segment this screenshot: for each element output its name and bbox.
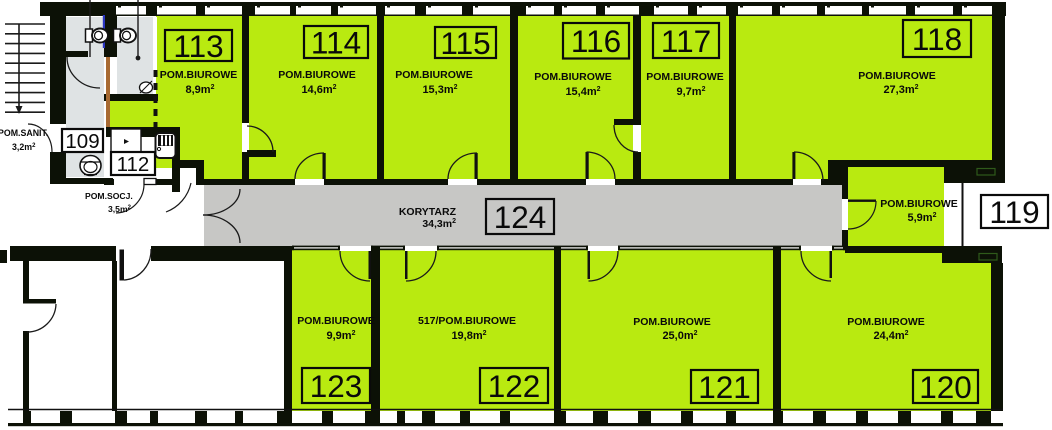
svg-text:14,6m2: 14,6m2 xyxy=(301,84,336,96)
svg-text:POM.BIUROWE: POM.BIUROWE xyxy=(278,69,356,81)
svg-text:POM.BIUROWE: POM.BIUROWE xyxy=(880,198,958,210)
svg-text:POM.BIUROWE: POM.BIUROWE xyxy=(858,70,936,82)
svg-text:19,8m2: 19,8m2 xyxy=(451,330,486,342)
svg-text:120: 120 xyxy=(919,369,972,405)
svg-text:124: 124 xyxy=(494,199,547,235)
svg-text:114: 114 xyxy=(311,24,361,60)
svg-text:KORYTARZ: KORYTARZ xyxy=(399,206,457,218)
svg-text:POM.BIUROWE: POM.BIUROWE xyxy=(633,316,711,328)
svg-text:112: 112 xyxy=(117,153,150,176)
svg-text:119: 119 xyxy=(989,194,1039,230)
svg-text:8,9m2: 8,9m2 xyxy=(186,84,215,96)
svg-text:24,4m2: 24,4m2 xyxy=(873,330,908,342)
svg-text:116: 116 xyxy=(571,23,621,59)
svg-text:POM.BIUROWE: POM.BIUROWE xyxy=(395,69,473,81)
svg-text:27,3m2: 27,3m2 xyxy=(883,84,918,96)
svg-text:POM.BIUROWE: POM.BIUROWE xyxy=(534,71,612,83)
svg-text:15,4m2: 15,4m2 xyxy=(565,86,600,98)
svg-text:118: 118 xyxy=(912,21,962,57)
svg-text:517/POM.BIUROWE: 517/POM.BIUROWE xyxy=(418,315,516,327)
svg-text:POM.BIUROWE: POM.BIUROWE xyxy=(847,316,925,328)
svg-text:15,3m2: 15,3m2 xyxy=(422,84,457,96)
svg-text:34,3m2: 34,3m2 xyxy=(422,218,456,230)
svg-text:POM.SANIT.: POM.SANIT. xyxy=(0,128,48,138)
svg-text:123: 123 xyxy=(310,368,363,404)
svg-text:122: 122 xyxy=(488,368,541,404)
svg-text:25,0m2: 25,0m2 xyxy=(662,330,697,342)
svg-text:109: 109 xyxy=(65,130,99,153)
svg-text:POM.SOCJ.: POM.SOCJ. xyxy=(85,191,133,201)
svg-text:POM.BIUROWE: POM.BIUROWE xyxy=(646,71,724,83)
svg-text:POM.BIUROWE: POM.BIUROWE xyxy=(297,315,375,327)
svg-text:117: 117 xyxy=(661,23,711,59)
svg-text:9,9m2: 9,9m2 xyxy=(327,330,356,342)
svg-text:121: 121 xyxy=(698,369,751,405)
svg-text:9,7m2: 9,7m2 xyxy=(677,86,706,98)
svg-text:POM.BIUROWE: POM.BIUROWE xyxy=(160,69,238,81)
svg-text:115: 115 xyxy=(440,25,490,61)
svg-text:5,9m2: 5,9m2 xyxy=(908,212,937,224)
svg-text:113: 113 xyxy=(173,28,223,64)
